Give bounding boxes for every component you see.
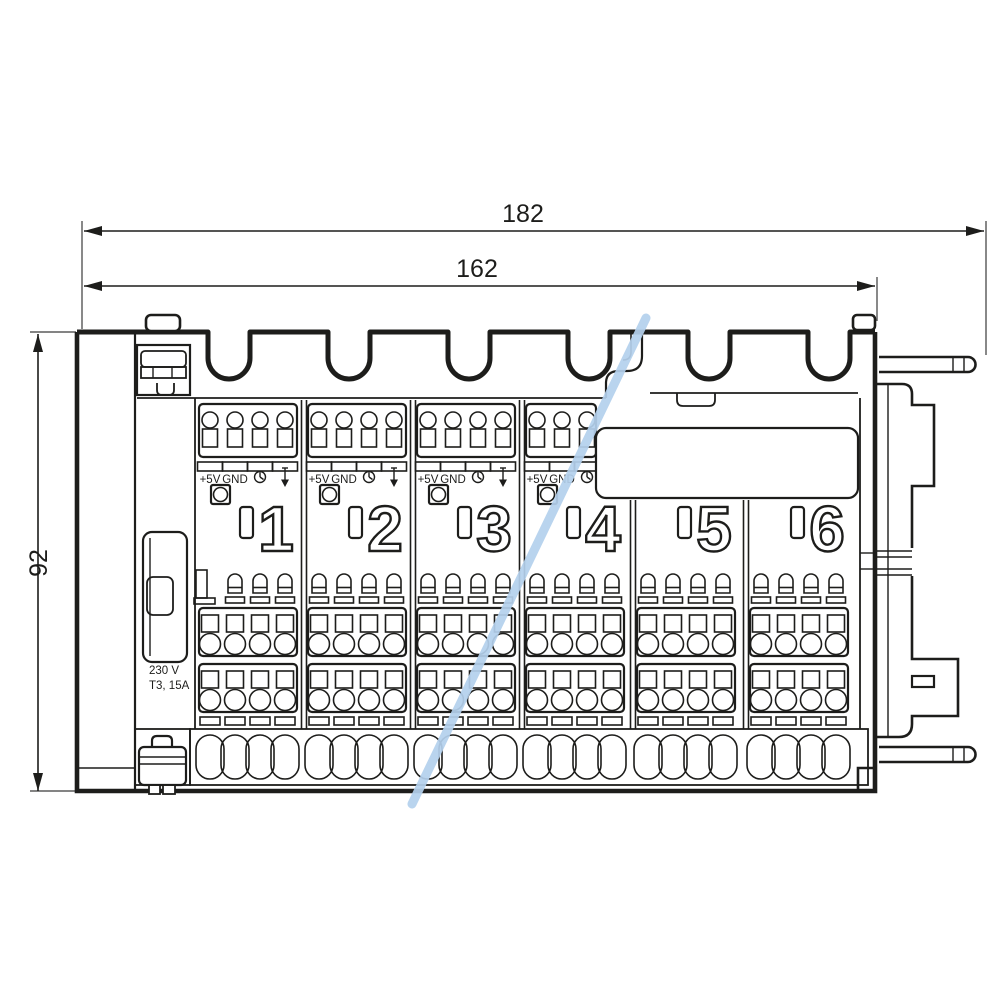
drawing-shape (139, 747, 186, 785)
zone-number-3: 3 (476, 493, 510, 565)
label-cover-plate (596, 428, 858, 498)
dimension-value-outer-width: 182 (502, 200, 544, 228)
zone-number-1: 1 (258, 493, 292, 565)
zone-number-2: 2 (367, 493, 401, 565)
drawing-shape (149, 785, 160, 794)
zone-number-6: 6 (809, 493, 843, 565)
drawing-shape (163, 785, 175, 794)
top-lip-left (146, 315, 180, 331)
drawing-canvas: 182 162 92 (0, 0, 1000, 1000)
mounting-pin-top (879, 357, 976, 372)
top-lip-right (853, 315, 875, 330)
dimension-value-inner-width: 162 (456, 255, 498, 283)
dimension-value-height: 92 (25, 549, 53, 577)
voltage-label: 230 V (149, 665, 179, 677)
zone-number-4: 4 (585, 493, 621, 565)
dimension-drawing: 182 162 92 (0, 0, 1000, 1000)
mounting-pin-bottom (879, 747, 976, 762)
fuse-rating-label: T3, 15A (149, 680, 190, 692)
zone-number-5: 5 (696, 493, 730, 565)
